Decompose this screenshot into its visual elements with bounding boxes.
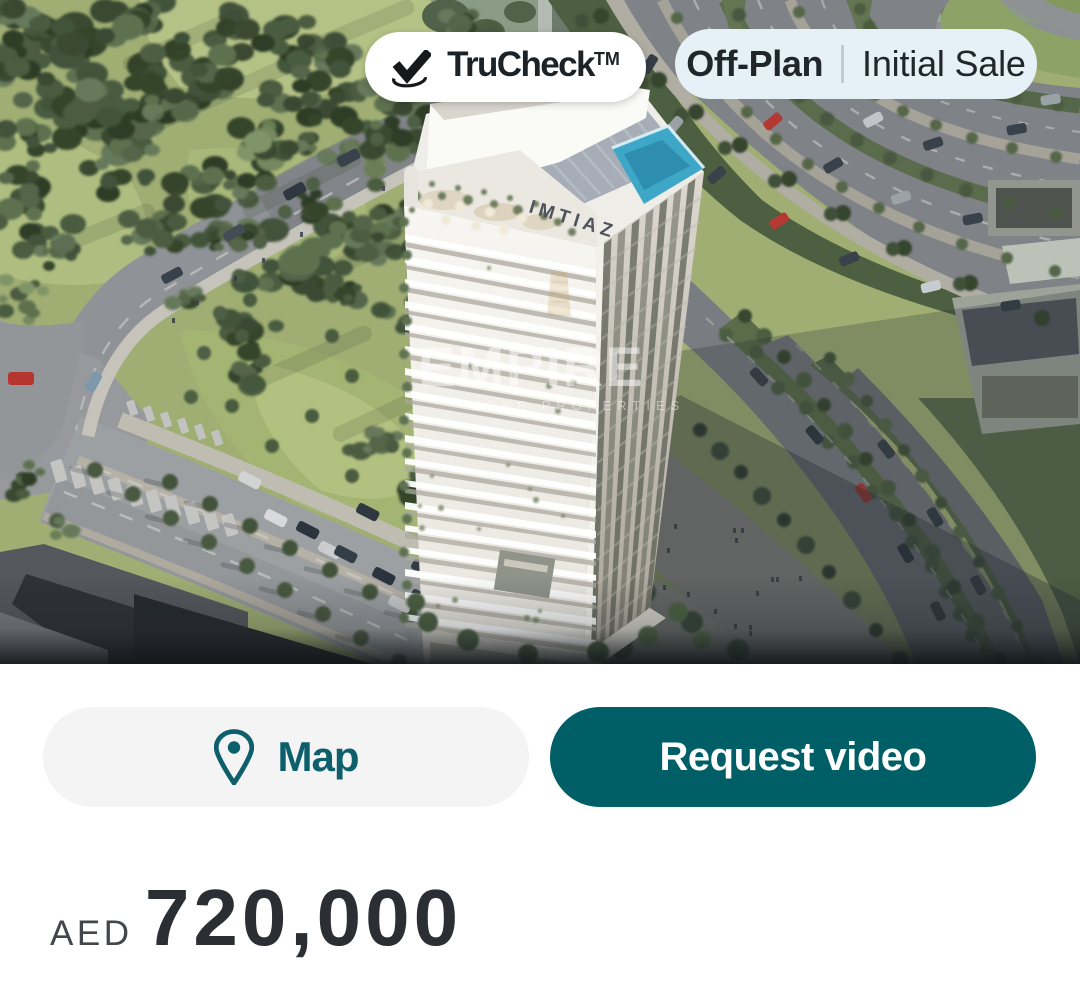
svg-text:ZONE PROPERTIES: ZONE PROPERTIES	[472, 398, 685, 413]
svg-text:EMPIRE: EMPIRE	[418, 335, 645, 398]
